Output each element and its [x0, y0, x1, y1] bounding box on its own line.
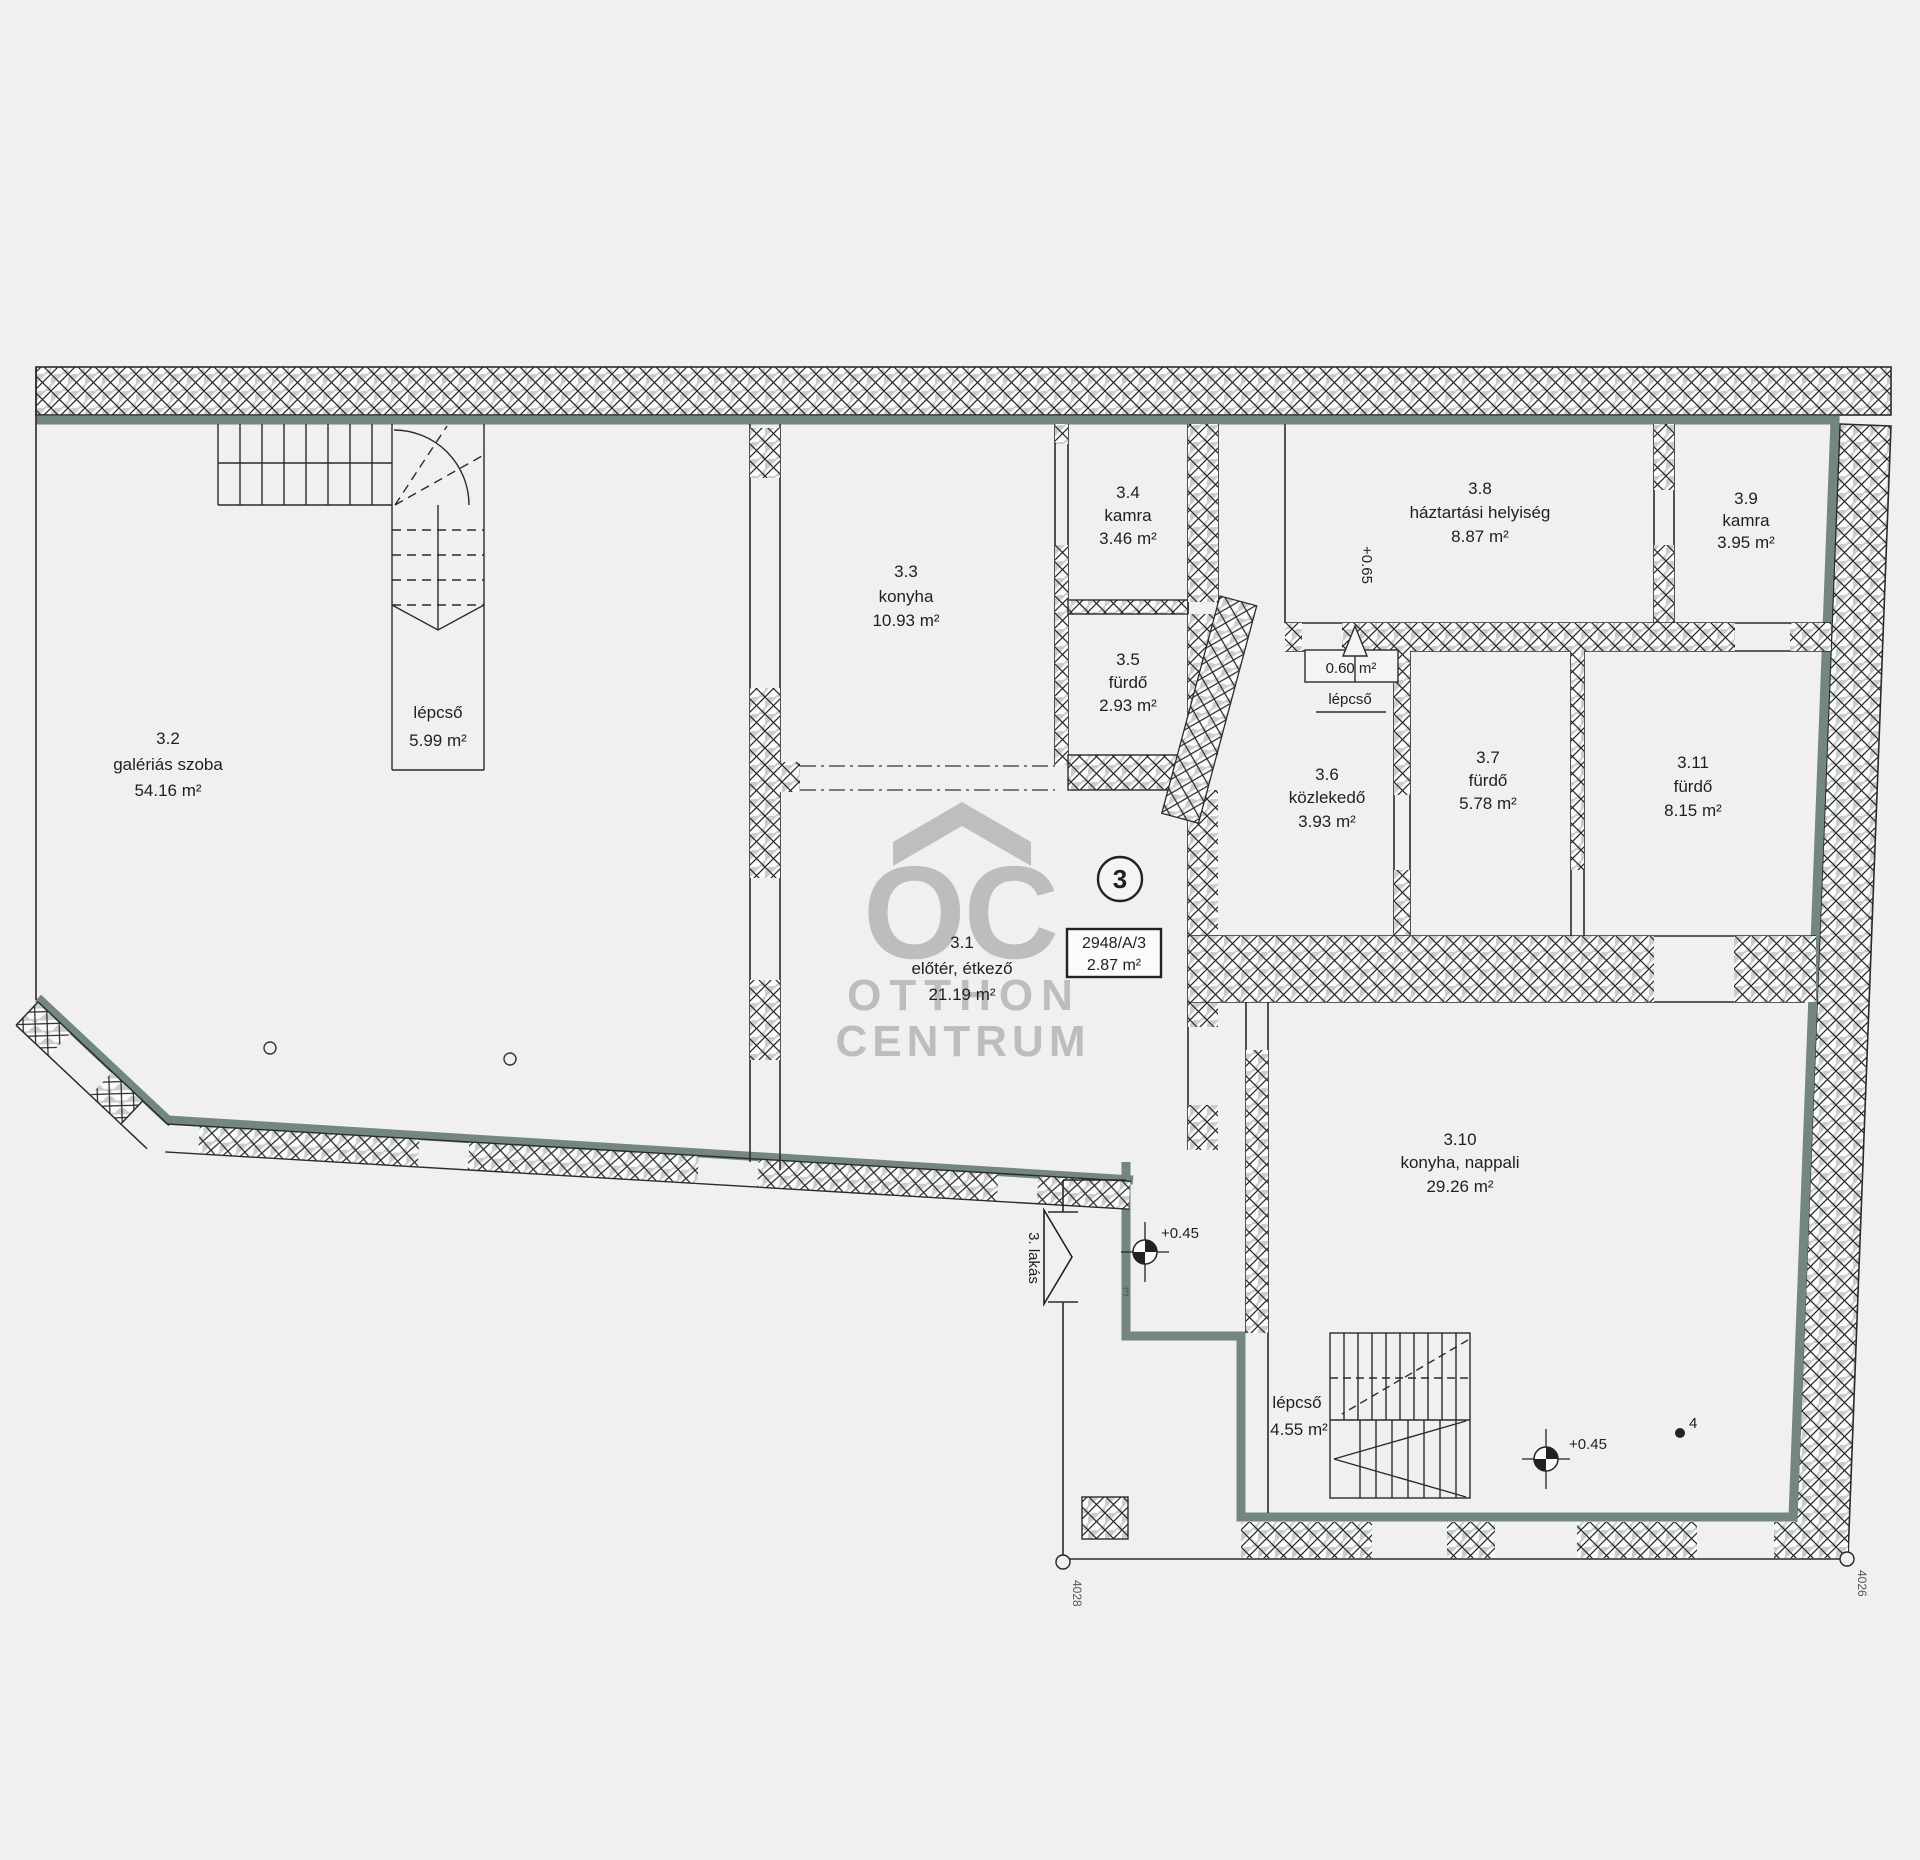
- svg-text:3.6: 3.6: [1315, 765, 1339, 784]
- svg-text:fürdő: fürdő: [1674, 777, 1713, 796]
- svg-text:2.93 m²: 2.93 m²: [1099, 696, 1157, 715]
- svg-text:3.10: 3.10: [1443, 1130, 1476, 1149]
- room-label-3-11: 3.11 fürdő 8.15 m²: [1664, 753, 1722, 820]
- svg-text:konyha, nappali: konyha, nappali: [1400, 1153, 1519, 1172]
- svg-text:kamra: kamra: [1722, 511, 1770, 530]
- level-entry: +0.45: [1161, 1225, 1199, 1242]
- svg-text:3.7: 3.7: [1476, 748, 1500, 767]
- room-label-3-5: 3.5 fürdő 2.93 m²: [1099, 650, 1157, 715]
- svg-text:kamra: kamra: [1104, 506, 1152, 525]
- room-label-3-4: 3.4 kamra 3.46 m²: [1099, 483, 1157, 548]
- wall-diagonal-steep: [16, 1002, 169, 1149]
- svg-text:29.26 m²: 29.26 m²: [1426, 1177, 1493, 1196]
- survey-corner-icon: [1840, 1552, 1854, 1566]
- room-label-3-10: 3.10 konyha, nappali 29.26 m²: [1400, 1130, 1519, 1196]
- post-icon: [504, 1053, 516, 1065]
- svg-text:3.46 m²: 3.46 m²: [1099, 529, 1157, 548]
- svg-text:8.15 m²: 8.15 m²: [1664, 801, 1722, 820]
- survey-id-right: 4026: [1855, 1570, 1869, 1597]
- floor-plan-drawing: OC OTTHON CENTRUM 3.1 előtér, étkező 21.…: [0, 0, 1920, 1860]
- svg-text:10.93 m²: 10.93 m²: [872, 611, 939, 630]
- svg-text:3.93 m²: 3.93 m²: [1298, 812, 1356, 831]
- survey-point-4: 4: [1689, 1415, 1697, 1432]
- lot-plate: 2948/A/3 2.87 m²: [1067, 929, 1161, 977]
- svg-text:3.3: 3.3: [894, 562, 918, 581]
- svg-text:3.8: 3.8: [1468, 479, 1492, 498]
- room-label-3-7: 3.7 fürdő 5.78 m²: [1459, 748, 1517, 813]
- mini-stair-label: lépcső: [1328, 691, 1371, 708]
- svg-text:fürdő: fürdő: [1469, 771, 1508, 790]
- entrance-arrow-icon: [1044, 1210, 1072, 1304]
- svg-text:3.4: 3.4: [1116, 483, 1140, 502]
- svg-text:8.87 m²: 8.87 m²: [1451, 527, 1509, 546]
- svg-text:3: 3: [1113, 864, 1127, 894]
- svg-text:5.78 m²: 5.78 m²: [1459, 794, 1517, 813]
- stair-lower-label: lépcső: [1272, 1393, 1321, 1412]
- mini-stair-area: 0.60 m²: [1326, 660, 1377, 677]
- stair-upper-area: 5.99 m²: [409, 731, 467, 750]
- level-utility: +0.65: [1358, 546, 1375, 584]
- room-label-3-2: 3.2 galériás szoba 54.16 m²: [113, 729, 223, 800]
- benchmark-icon: [1522, 1429, 1570, 1489]
- ceiling-height: 2.87 m²: [1087, 957, 1142, 974]
- level-living: +0.45: [1569, 1436, 1607, 1453]
- post-icon: [264, 1042, 276, 1054]
- svg-text:54.16 m²: 54.16 m²: [134, 781, 201, 800]
- watermark-centrum: CENTRUM: [836, 1017, 1091, 1066]
- svg-text:3.5: 3.5: [1116, 650, 1140, 669]
- room-label-3-3: 3.3 konyha 10.93 m²: [872, 562, 939, 630]
- svg-text:3.95 m²: 3.95 m²: [1717, 533, 1775, 552]
- svg-text:közlekedő: közlekedő: [1289, 788, 1366, 807]
- survey-corner-icon: [1056, 1555, 1070, 1569]
- wall-bottom-band: [1063, 1522, 1848, 1559]
- svg-text:galériás szoba: galériás szoba: [113, 755, 223, 774]
- svg-text:fürdő: fürdő: [1109, 673, 1148, 692]
- svg-text:21.19 m²: 21.19 m²: [928, 985, 995, 1004]
- svg-text:konyha: konyha: [879, 587, 934, 606]
- stair-lower-area: 4.55 m²: [1270, 1420, 1328, 1439]
- room-label-3-8: 3.8 háztartási helyiség 8.87 m²: [1410, 479, 1551, 546]
- svg-text:háztartási helyiség: háztartási helyiség: [1410, 503, 1551, 522]
- survey-point-icon: [1675, 1428, 1685, 1438]
- wall-stub: [1082, 1497, 1128, 1539]
- room-label-3-9: 3.9 kamra 3.95 m²: [1717, 489, 1775, 552]
- survey-id-left: 4028: [1070, 1580, 1084, 1607]
- entrance-label: 3. lakás: [1025, 1232, 1042, 1284]
- floor-plan-page: OC OTTHON CENTRUM 3.1 előtér, étkező 21.…: [0, 0, 1920, 1860]
- room-labels: 3.1 előtér, étkező 21.19 m² 3.2 galériás…: [113, 479, 1775, 1196]
- wall-top-band: [36, 367, 1891, 415]
- svg-text:előtér, étkező: előtér, étkező: [911, 959, 1012, 978]
- svg-text:3.1: 3.1: [950, 933, 974, 952]
- stair-upper-label: lépcső: [413, 703, 462, 722]
- staircase-lower-right: [1330, 1333, 1470, 1498]
- svg-text:3.11: 3.11: [1677, 753, 1709, 772]
- svg-text:3.9: 3.9: [1734, 489, 1758, 508]
- room-label-3-6: 3.6 közlekedő 3.93 m²: [1289, 765, 1366, 831]
- unit-badge: 3: [1098, 857, 1142, 901]
- svg-text:3.2: 3.2: [156, 729, 180, 748]
- survey-point-3: 3: [1123, 1285, 1130, 1299]
- lot-number: 2948/A/3: [1082, 935, 1146, 952]
